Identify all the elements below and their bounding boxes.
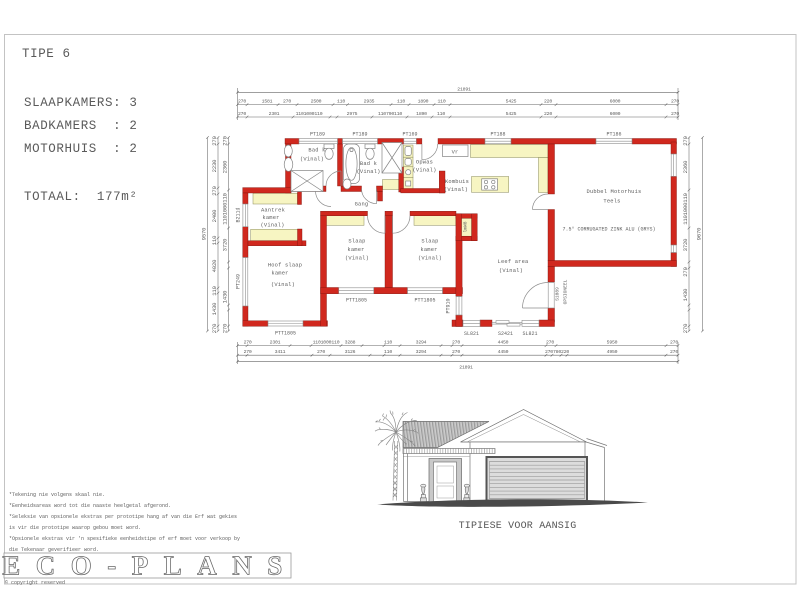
svg-text:1430: 1430 bbox=[211, 302, 218, 315]
svg-text:Gang: Gang bbox=[355, 202, 369, 208]
svg-text:TIPIESE VOOR AANSIG: TIPIESE VOOR AANSIG bbox=[459, 521, 577, 532]
svg-text:1101000110: 1101000110 bbox=[313, 340, 340, 346]
svg-text:2301: 2301 bbox=[270, 340, 281, 346]
svg-text:2360: 2360 bbox=[682, 160, 689, 173]
svg-text:220: 220 bbox=[544, 111, 552, 117]
svg-text:4950: 4950 bbox=[607, 349, 618, 355]
svg-text:PT189: PT189 bbox=[352, 132, 367, 138]
svg-text:OPSIONEEL: OPSIONEEL bbox=[563, 279, 569, 304]
svg-text:Kombuis: Kombuis bbox=[445, 179, 469, 185]
svg-text:(Vinal): (Vinal) bbox=[444, 187, 468, 193]
svg-text:(Vinal): (Vinal) bbox=[418, 256, 442, 262]
svg-text:PTT1805: PTT1805 bbox=[414, 298, 435, 304]
svg-text:*Eenheidsareas word tot die na: *Eenheidsareas word tot die naaste heelg… bbox=[9, 503, 171, 509]
svg-text:PT169: PT169 bbox=[402, 132, 417, 138]
svg-text:2230: 2230 bbox=[211, 159, 218, 172]
svg-text:21891: 21891 bbox=[457, 86, 471, 92]
svg-text:SLAAPKAMERS: 3: SLAAPKAMERS: 3 bbox=[24, 96, 137, 110]
svg-text:PT186: PT186 bbox=[606, 132, 621, 138]
svg-text:B211d: B211d bbox=[236, 207, 242, 222]
svg-text:270: 270 bbox=[244, 349, 252, 355]
svg-text:270: 270 bbox=[211, 185, 218, 195]
svg-text:2975: 2975 bbox=[347, 111, 358, 117]
svg-text:Hoof slaap: Hoof slaap bbox=[268, 263, 302, 269]
svg-text:2935: 2935 bbox=[364, 99, 375, 105]
svg-text:110790110: 110790110 bbox=[378, 111, 402, 117]
svg-text:270: 270 bbox=[211, 323, 218, 333]
svg-text:110: 110 bbox=[397, 99, 405, 105]
svg-text:270: 270 bbox=[682, 323, 689, 333]
svg-text:6000: 6000 bbox=[610, 111, 621, 117]
svg-text:1581: 1581 bbox=[262, 99, 273, 105]
svg-text:1430: 1430 bbox=[222, 290, 229, 303]
svg-text:2500: 2500 bbox=[311, 99, 322, 105]
svg-text:110: 110 bbox=[384, 349, 392, 355]
svg-text:270: 270 bbox=[222, 323, 229, 333]
svg-text:3411: 3411 bbox=[275, 349, 286, 355]
svg-text:270: 270 bbox=[670, 340, 678, 346]
svg-text:270: 270 bbox=[283, 99, 291, 105]
svg-text:4020: 4020 bbox=[211, 259, 218, 272]
svg-text:is vir die prototipe waarop ge: is vir die prototipe waarop gebou moet w… bbox=[9, 525, 141, 531]
svg-text:Slaap: Slaap bbox=[421, 239, 438, 245]
svg-text:1101000110: 1101000110 bbox=[296, 111, 323, 117]
svg-text:(Vinal): (Vinal) bbox=[412, 168, 436, 174]
svg-text:ECO-PLANS: ECO-PLANS bbox=[2, 551, 298, 581]
svg-text:Dubbel Motorhuis: Dubbel Motorhuis bbox=[587, 189, 642, 195]
svg-text:270: 270 bbox=[452, 340, 460, 346]
svg-text:110: 110 bbox=[437, 111, 445, 117]
svg-text:PT249: PT249 bbox=[236, 274, 242, 289]
svg-text:5950: 5950 bbox=[607, 340, 618, 346]
svg-text:Teels: Teels bbox=[603, 199, 620, 205]
svg-text:PTT1805: PTT1805 bbox=[346, 298, 367, 304]
svg-text:3288: 3288 bbox=[345, 340, 356, 346]
svg-text:(Vinal): (Vinal) bbox=[499, 268, 523, 274]
svg-text:1101000110: 1101000110 bbox=[682, 192, 689, 224]
svg-text:220: 220 bbox=[544, 99, 552, 105]
svg-text:Opwas: Opwas bbox=[416, 160, 433, 166]
svg-text:270: 270 bbox=[546, 340, 554, 346]
svg-text:BADKAMERS : 2: BADKAMERS : 2 bbox=[24, 119, 137, 133]
svg-text:1890: 1890 bbox=[418, 99, 429, 105]
svg-text:4450: 4450 bbox=[498, 349, 509, 355]
svg-text:1890: 1890 bbox=[416, 111, 427, 117]
svg-text:3126: 3126 bbox=[345, 349, 356, 355]
svg-text:Slaap: Slaap bbox=[348, 239, 365, 245]
svg-text:5425: 5425 bbox=[506, 99, 517, 105]
svg-text:Aantrek: Aantrek bbox=[261, 208, 285, 214]
svg-text:4450: 4450 bbox=[498, 340, 509, 346]
svg-text:3720: 3720 bbox=[222, 238, 229, 251]
svg-text:270: 270 bbox=[211, 135, 218, 145]
svg-text:270780220: 270780220 bbox=[545, 349, 569, 355]
svg-text:Vr: Vr bbox=[452, 150, 459, 156]
svg-text:270: 270 bbox=[670, 349, 678, 355]
svg-text:(Vinal): (Vinal) bbox=[345, 256, 369, 262]
svg-text:SL821: SL821 bbox=[522, 331, 537, 337]
svg-text:PTT1805: PTT1805 bbox=[275, 331, 296, 337]
svg-text:kamer: kamer bbox=[347, 247, 364, 253]
svg-text:*Opsionele ekstras vir 'n spes: *Opsionele ekstras vir 'n spesifieke een… bbox=[9, 536, 240, 542]
svg-text:3294: 3294 bbox=[416, 340, 427, 346]
svg-text:TOTAAL: 177m²: TOTAAL: 177m² bbox=[24, 190, 137, 204]
svg-text:3720: 3720 bbox=[682, 238, 689, 251]
svg-text:270: 270 bbox=[671, 111, 679, 117]
svg-text:S1089: S1089 bbox=[555, 287, 561, 301]
svg-text:2301: 2301 bbox=[269, 111, 280, 117]
svg-text:6000: 6000 bbox=[610, 99, 621, 105]
svg-text:110: 110 bbox=[437, 99, 445, 105]
svg-text:Bad k: Bad k bbox=[360, 161, 377, 167]
svg-text:110: 110 bbox=[384, 340, 392, 346]
svg-text:270: 270 bbox=[238, 111, 246, 117]
svg-text:270: 270 bbox=[244, 340, 252, 346]
svg-text:9670: 9670 bbox=[696, 227, 703, 240]
svg-text:(Vinal): (Vinal) bbox=[356, 169, 380, 175]
svg-text:Leef area: Leef area bbox=[498, 259, 529, 265]
svg-text:5425: 5425 bbox=[506, 111, 517, 117]
svg-text:1430: 1430 bbox=[682, 288, 689, 301]
svg-text:PT188: PT188 bbox=[490, 132, 505, 138]
svg-text:3294: 3294 bbox=[416, 349, 427, 355]
svg-text:PT910: PT910 bbox=[446, 298, 452, 313]
svg-text:110: 110 bbox=[337, 99, 345, 105]
svg-text:kamer: kamer bbox=[271, 271, 288, 277]
svg-text:*Seleksie van opsionele ekstra: *Seleksie van opsionele ekstras per prot… bbox=[9, 514, 237, 520]
svg-text:270: 270 bbox=[682, 135, 689, 145]
svg-text:9570: 9570 bbox=[201, 227, 208, 240]
svg-text:kamer: kamer bbox=[420, 247, 437, 253]
svg-text:(Vinal): (Vinal) bbox=[260, 222, 284, 228]
svg-text:kamer: kamer bbox=[262, 215, 279, 221]
svg-text:MOTORHUIS : 2: MOTORHUIS : 2 bbox=[24, 142, 137, 156]
svg-text:110: 110 bbox=[211, 285, 218, 295]
svg-text:270: 270 bbox=[238, 99, 246, 105]
svg-text:Bad k: Bad k bbox=[308, 148, 325, 154]
svg-text:21891: 21891 bbox=[459, 364, 473, 370]
svg-text:SL821: SL821 bbox=[464, 331, 479, 337]
svg-text:270: 270 bbox=[222, 135, 229, 145]
svg-text:PT189: PT189 bbox=[310, 132, 325, 138]
svg-text:270: 270 bbox=[671, 99, 679, 105]
svg-text:110: 110 bbox=[211, 235, 218, 245]
svg-text:2400: 2400 bbox=[211, 209, 218, 222]
svg-text:270: 270 bbox=[682, 266, 689, 276]
svg-text:(Vinal): (Vinal) bbox=[271, 282, 295, 288]
svg-text:(Vinal): (Vinal) bbox=[300, 157, 324, 163]
svg-text:lmW8: lmW8 bbox=[463, 221, 469, 232]
svg-text:270: 270 bbox=[452, 349, 460, 355]
svg-text:270: 270 bbox=[317, 349, 325, 355]
svg-text:S2421: S2421 bbox=[498, 331, 513, 337]
svg-text:7.5° CORRUGATED ZINK ALU (GRYS: 7.5° CORRUGATED ZINK ALU (GRYS) bbox=[562, 227, 655, 233]
svg-text:*Tekening nie volgens skaal ni: *Tekening nie volgens skaal nie. bbox=[9, 492, 105, 498]
svg-text:1101000110: 1101000110 bbox=[222, 192, 229, 224]
svg-text:TIPE 6: TIPE 6 bbox=[22, 47, 71, 61]
svg-text:2360: 2360 bbox=[222, 160, 229, 173]
svg-text:© copyright reserved: © copyright reserved bbox=[5, 579, 65, 586]
